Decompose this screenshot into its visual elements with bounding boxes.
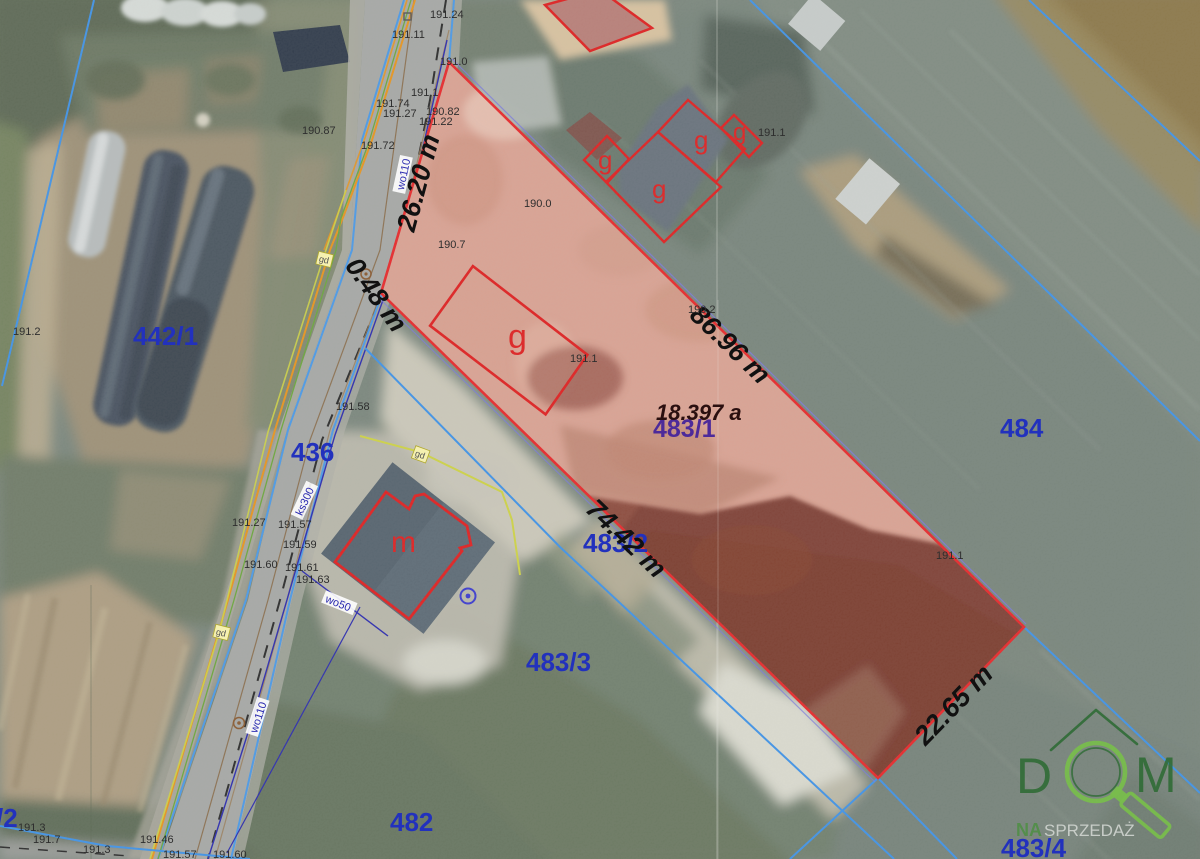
svg-text:191.60: 191.60	[244, 559, 278, 571]
svg-text:484: 484	[1000, 413, 1044, 443]
svg-text:191.27: 191.27	[383, 108, 417, 120]
svg-text:191.72: 191.72	[361, 140, 395, 152]
svg-text:191.3: 191.3	[83, 844, 111, 856]
svg-text:191.2: 191.2	[13, 326, 41, 338]
svg-text:191.1: 191.1	[411, 87, 439, 99]
svg-text:190.2: 190.2	[688, 304, 716, 316]
svg-text:191.1: 191.1	[570, 353, 598, 365]
svg-text:190.0: 190.0	[524, 198, 552, 210]
svg-text:M: M	[1135, 747, 1177, 803]
svg-text:191.59: 191.59	[283, 539, 317, 551]
svg-text:191.0: 191.0	[440, 56, 468, 68]
svg-text:482: 482	[390, 807, 433, 837]
svg-text:/2: /2	[0, 803, 18, 833]
svg-text:NA: NA	[1016, 820, 1042, 840]
svg-text:191.22: 191.22	[419, 116, 453, 128]
svg-text:191.7: 191.7	[33, 834, 61, 846]
svg-text:191.1: 191.1	[936, 550, 964, 562]
svg-text:191.60: 191.60	[213, 849, 247, 859]
svg-text:191.58: 191.58	[336, 401, 370, 413]
svg-text:436: 436	[291, 437, 334, 467]
svg-text:191.63: 191.63	[296, 574, 330, 586]
svg-text:190.7: 190.7	[438, 239, 466, 251]
svg-text:191.46: 191.46	[140, 834, 174, 846]
svg-text:442/1: 442/1	[133, 321, 198, 351]
svg-text:190.87: 190.87	[302, 125, 336, 137]
svg-text:483/3: 483/3	[526, 647, 591, 677]
svg-text:191.57: 191.57	[278, 519, 312, 531]
svg-text:191.24: 191.24	[430, 9, 464, 21]
svg-text:D: D	[1016, 748, 1052, 804]
svg-text:191.61: 191.61	[285, 562, 319, 574]
svg-text:SPRZEDAŻ: SPRZEDAŻ	[1044, 821, 1135, 840]
svg-text:191.3: 191.3	[18, 822, 46, 834]
svg-text:191.11: 191.11	[392, 29, 425, 41]
svg-text:191.27: 191.27	[232, 517, 266, 529]
svg-text:18.397 a: 18.397 a	[656, 400, 742, 425]
svg-text:191.1: 191.1	[758, 127, 786, 139]
svg-text:191.57: 191.57	[163, 849, 197, 859]
